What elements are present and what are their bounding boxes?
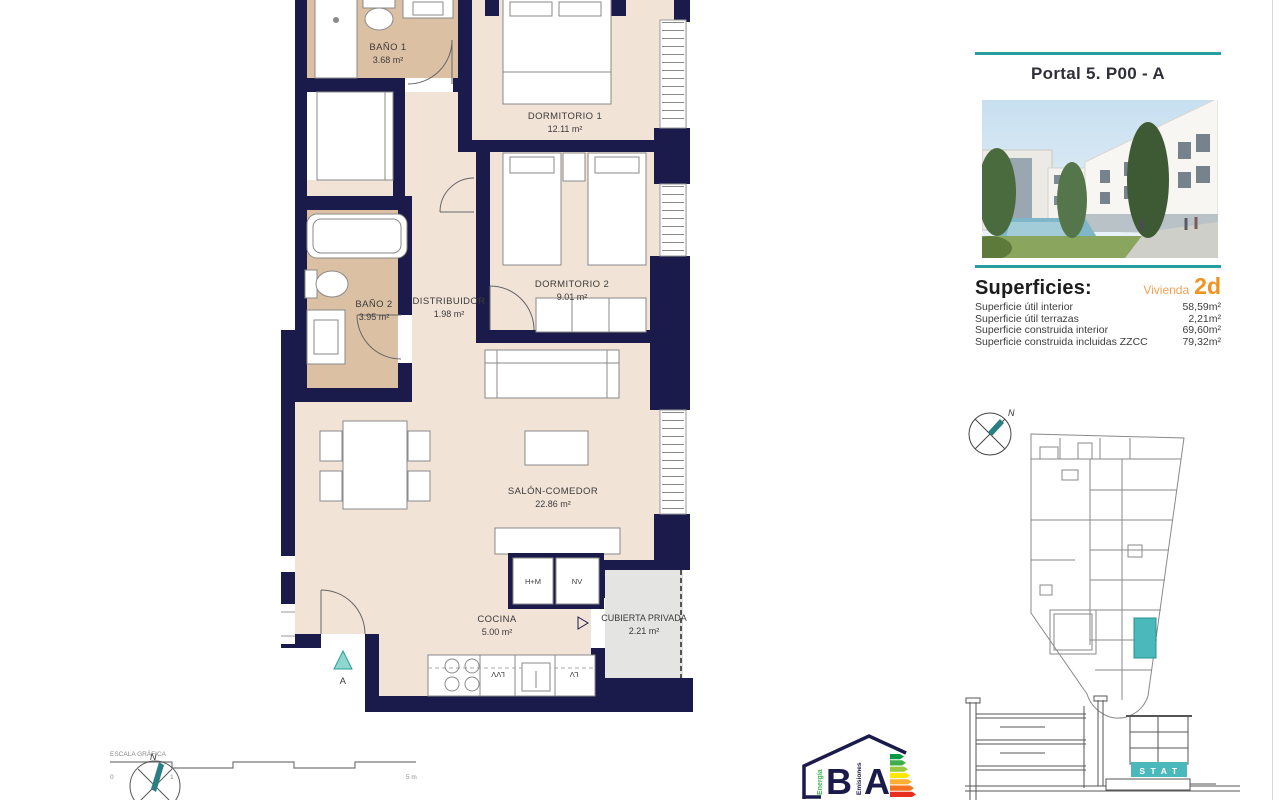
building-render-photo [968, 98, 1218, 260]
kitchen-counter: LVV LV [428, 655, 595, 696]
superficies-table: Superficie útil interior 58,59m² Superfi… [975, 302, 1221, 348]
scale-tick-1: 1 [170, 774, 174, 781]
entry-marker-label: A [340, 676, 347, 687]
compass-needle [151, 762, 164, 792]
scale-tick-5m: 5 m [406, 774, 417, 781]
row-label: Superficie útil interior [975, 302, 1073, 314]
sofa [485, 350, 619, 398]
room-cubierta-name: CUBIERTA PRIVADA [601, 613, 687, 623]
page-edge-line [1272, 0, 1273, 800]
sheet-title: Portal 5. P00 - A [975, 64, 1221, 84]
room-dorm1-area: 12.11 m² [548, 124, 583, 134]
chair [320, 431, 342, 461]
shower [315, 0, 357, 78]
room-cubierta-area: 2.21 m² [629, 626, 660, 636]
energy-efficiency-logo: Energía B Emisiones A [804, 736, 916, 800]
toilet [316, 271, 348, 297]
private-terrace-floor [603, 568, 683, 678]
window [281, 604, 295, 644]
superficies-rule [975, 265, 1221, 268]
scale-tick-0: 0 [110, 774, 114, 781]
room-distribuidor-name: DISTRIBUIDOR [413, 296, 486, 307]
row-label: Superficie construida incluidas ZZCC [975, 337, 1148, 349]
superficies-heading: Superficies: [975, 277, 1092, 300]
energia-label: Energía [817, 769, 824, 795]
room-dorm2-name: DORMITORIO 2 [535, 279, 609, 290]
row-value: 58,59m² [1182, 302, 1221, 314]
room-dorm1-name: DORMITORIO 1 [528, 111, 602, 122]
site-compass-needle [988, 419, 1004, 436]
chair [320, 471, 342, 501]
section-highlight-label: S T A T [1139, 766, 1178, 776]
vivienda-code: 2d [1194, 273, 1221, 300]
wardrobe [536, 298, 646, 332]
building-sections [965, 696, 1240, 800]
site-north-label: N [1008, 408, 1015, 418]
room-banio2-area: 3.95 m² [359, 312, 390, 322]
room-dorm2-area: 9.01 m² [557, 292, 588, 302]
room-distribuidor-area: 1.98 m² [434, 309, 465, 319]
room-cocina-name: COCINA [477, 614, 517, 625]
energy-letter-b: B [826, 761, 852, 800]
plan-sheet-page: H+M NV LVV LV [0, 0, 1280, 800]
coffee-table [525, 431, 588, 465]
site-compass-rose: N [969, 408, 1015, 455]
room-salon-name: SALÓN-COMEDOR [508, 486, 598, 497]
sheet-graphics: H+M NV LVV LV [0, 0, 1280, 800]
closet [317, 92, 393, 180]
toilet-tank [305, 270, 317, 298]
media-unit [495, 528, 620, 554]
room-cocina-area: 5.00 m² [482, 627, 513, 637]
superficies-row: Superficie construida incluidas ZZCC 79,… [975, 337, 1221, 349]
chair [408, 471, 430, 501]
room-banio1-name: BAÑO 1 [369, 42, 406, 53]
room-banio2-name: BAÑO 2 [355, 299, 392, 310]
emisiones-label: Emisiones [856, 762, 863, 795]
energy-scale-arrows [890, 754, 916, 797]
chair [408, 431, 430, 461]
title-rule [975, 52, 1221, 55]
fridge-label: NV [572, 577, 582, 586]
floor-plan: H+M NV LVV LV [281, 0, 693, 712]
window [281, 556, 295, 572]
scale-bar-title: ESCALA GRÁFICA [110, 749, 167, 758]
dishwasher-label: LV [570, 670, 579, 679]
superficies-block: Superficies: Vivienda 2d Superficie útil… [975, 265, 1221, 348]
room-salon-area: 22.86 m² [535, 499, 571, 509]
row-value: 79,32m² [1182, 337, 1221, 349]
oven-micro-label: H+M [525, 577, 541, 586]
north-label: N [150, 752, 157, 762]
nightstand [563, 153, 585, 181]
title-block: Portal 5. P00 - A [975, 52, 1221, 84]
washer-label: LVV [491, 670, 505, 679]
energy-letter-a: A [864, 761, 890, 800]
appliance-closet: H+M NV [508, 553, 604, 609]
toilet [365, 8, 393, 30]
vivienda-label: Vivienda [1143, 283, 1189, 297]
room-banio1-area: 3.68 m² [373, 55, 404, 65]
highlighted-unit [1134, 618, 1156, 658]
superficies-row: Superficie útil interior 58,59m² [975, 302, 1221, 314]
site-key-plan [1031, 434, 1184, 718]
toilet-tank [363, 0, 395, 8]
dining-table [343, 421, 407, 509]
entry-porch [281, 648, 365, 712]
